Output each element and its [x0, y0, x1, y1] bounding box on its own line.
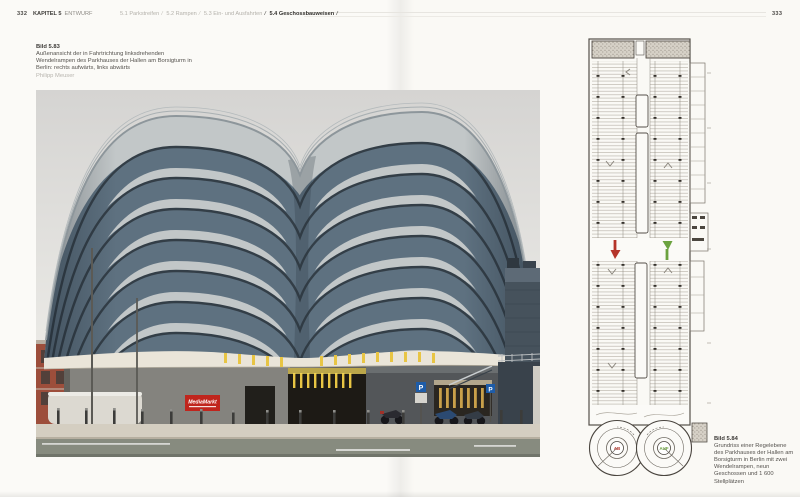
chapter-title: ENTWURF	[65, 11, 93, 17]
plan-wall-hatch-left	[592, 41, 634, 58]
photo-caption: Bild 5.83 Außenansicht der in Fahrtricht…	[36, 44, 194, 80]
service-door	[245, 386, 275, 424]
chapter-number: KAPITEL 5	[33, 11, 62, 17]
section-tabs: 5.1 Parkstreifen/ 5.2 Rampen/ 5.3 Ein- u…	[118, 11, 338, 18]
header-rule	[304, 12, 766, 13]
ramp-label-up: AUF	[659, 446, 668, 451]
plan-caption-text: Grundriss einer Regelebene des Parkhause…	[714, 443, 793, 484]
ramp-label-down: AB	[614, 446, 620, 451]
running-header: 332 KAPITEL 5ENTWURF 5.1 Parkstreifen/ 5…	[0, 11, 800, 21]
chapter-label: KAPITEL 5ENTWURF	[33, 11, 92, 18]
street	[36, 424, 540, 457]
page-number-left: 332	[17, 11, 27, 18]
tab-5-3: 5.3 Ein- und Ausfahrten	[204, 11, 262, 17]
plan-mid-aisle	[590, 238, 689, 261]
plan-annex	[690, 63, 711, 442]
exit-opening	[434, 380, 492, 416]
plan-caption: Bild 5.84 Grundriss einer Regelebene des…	[714, 436, 794, 486]
floor-plan: AB AUF	[584, 33, 712, 481]
plan-ramp-approach	[590, 405, 689, 424]
mediamarkt-label: MediaMarkt	[188, 400, 217, 406]
photo-caption-text: Außenansicht der in Fahrtrichtung linksd…	[36, 51, 192, 71]
parking-sign-label: P	[419, 385, 424, 392]
mediamarkt-sign: MediaMarkt	[185, 395, 220, 411]
building-photo: MediaMarkt P P	[36, 90, 540, 457]
plan-spiral-ramps: AB AUF	[590, 421, 692, 476]
page-number-right: 333	[772, 11, 782, 18]
tab-5-4-active: 5.4 Geschossbauweisen	[270, 11, 335, 17]
entrance-light-strips	[293, 373, 351, 388]
tab-5-2: 5.2 Rampen	[166, 11, 196, 17]
tab-separator: /	[161, 11, 163, 17]
photo-caption-id: Bild 5.83	[36, 44, 194, 51]
book-spread: 332 KAPITEL 5ENTWURF 5.1 Parkstreifen/ 5…	[0, 0, 800, 497]
tab-separator: /	[336, 11, 338, 17]
tab-separator: /	[264, 11, 266, 17]
plaza-wall	[48, 392, 142, 424]
tab-separator: /	[199, 11, 201, 17]
page-bottom-edge	[0, 491, 800, 497]
plan-hatch-bottom-right	[692, 423, 707, 442]
tab-5-1: 5.1 Parkstreifen	[120, 11, 159, 17]
plan-top-stair	[636, 41, 644, 55]
parking-sign-label: P	[488, 386, 493, 393]
photo-credit: Philipp Meuser	[36, 73, 194, 80]
header-rule-2	[304, 16, 766, 17]
ramp-circle-up: AUF	[637, 421, 692, 476]
plan-caption-id: Bild 5.84	[714, 436, 794, 443]
plan-wall-hatch-right	[646, 41, 690, 58]
plan-dimension-ticks	[707, 73, 711, 403]
